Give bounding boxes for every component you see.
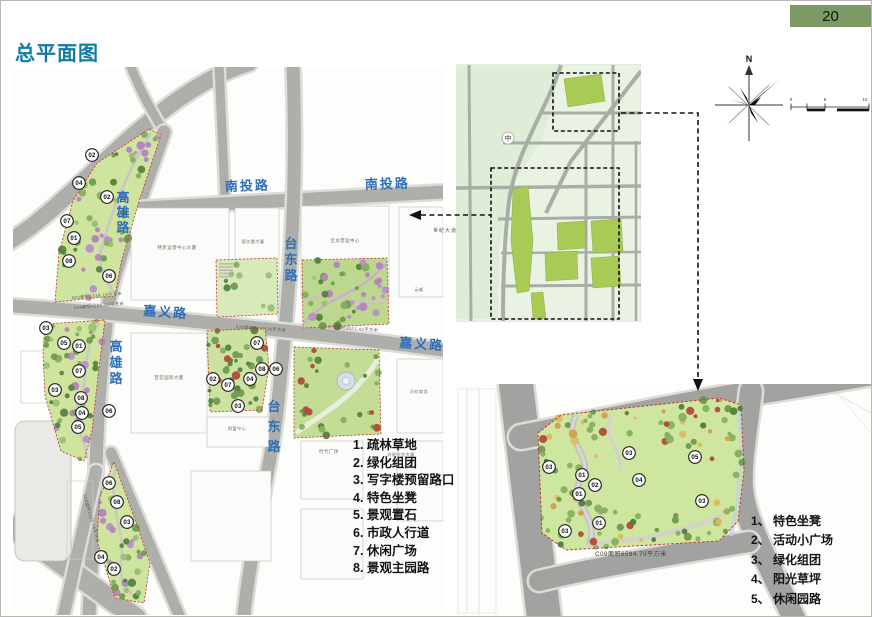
svg-text:08: 08 — [113, 499, 121, 506]
svg-text:南投路: 南投路 — [365, 175, 411, 192]
detail-area-caption: C09面积6594.70平方米 — [595, 550, 667, 558]
svg-text:N: N — [746, 54, 753, 64]
document-page: 20 总平面图 特步运营中心大厦德尔惠大厦宝龙营运中心百宏国际大厦财富中心时代广… — [0, 0, 872, 617]
plan-marker-03: 03 — [696, 495, 709, 508]
plan-marker-06: 06 — [103, 405, 116, 418]
svg-text:03: 03 — [561, 528, 569, 535]
plan-marker-05: 05 — [72, 421, 85, 434]
plan-marker-07: 07 — [73, 365, 86, 378]
svg-text:05: 05 — [691, 454, 699, 461]
svg-text:台东路: 台东路 — [267, 399, 281, 454]
svg-text:08: 08 — [258, 366, 266, 373]
plan-marker-08: 08 — [75, 392, 88, 405]
svg-text:02: 02 — [209, 376, 217, 383]
page-number: 20 — [822, 8, 839, 25]
detail-legend-item: 4、 阳光草坪 — [751, 570, 869, 589]
svg-text:03: 03 — [51, 387, 59, 394]
svg-text:德尔惠大厦: 德尔惠大厦 — [242, 238, 265, 245]
svg-text:高雄路: 高雄路 — [115, 190, 130, 235]
plan-marker-04: 04 — [73, 177, 86, 190]
plan-marker-04: 04 — [633, 474, 646, 487]
main-legend-item: 5. 景观置石 — [353, 507, 463, 525]
plan-marker-03: 03 — [121, 516, 134, 529]
svg-text:02: 02 — [591, 482, 599, 489]
page-number-badge: 20 — [790, 5, 871, 27]
svg-text:03: 03 — [42, 325, 50, 332]
svg-text:02: 02 — [103, 194, 111, 201]
detail-legend-item: 5、 休闲园路 — [751, 590, 869, 609]
svg-text:5: 5 — [824, 97, 827, 102]
plan-marker-07: 07 — [251, 337, 264, 350]
plan-marker-01: 01 — [73, 340, 86, 353]
plan-marker-08: 08 — [256, 363, 269, 376]
svg-text:0: 0 — [790, 97, 793, 102]
plan-marker-01: 01 — [68, 232, 81, 245]
north-compass-icon: N — [715, 54, 783, 141]
svg-text:07: 07 — [224, 382, 232, 389]
svg-text:04: 04 — [75, 180, 83, 187]
plan-marker-07: 07 — [61, 215, 74, 228]
plan-marker-06: 06 — [103, 270, 116, 283]
svg-text:台东路: 台东路 — [284, 236, 298, 283]
svg-text:01: 01 — [595, 520, 603, 527]
svg-text:嘉义路: 嘉义路 — [142, 303, 189, 321]
page-title: 总平面图 — [15, 37, 99, 66]
svg-text:04: 04 — [97, 554, 105, 561]
svg-text:03: 03 — [625, 450, 633, 457]
svg-text:03: 03 — [545, 464, 553, 471]
svg-text:百宏国际大厦: 百宏国际大厦 — [154, 374, 183, 381]
plan-marker-01: 01 — [576, 469, 589, 482]
main-legend-item: 3. 写字楼预留路口 — [353, 472, 463, 490]
svg-text:05: 05 — [60, 340, 68, 347]
svg-text:01: 01 — [70, 235, 78, 242]
plan-marker-02: 02 — [86, 149, 99, 162]
svg-text:03: 03 — [123, 519, 131, 526]
plan-marker-03: 03 — [543, 461, 556, 474]
plan-marker-03: 03 — [49, 384, 62, 397]
plan-marker-07: 07 — [222, 379, 235, 392]
svg-text:07: 07 — [253, 340, 261, 347]
plan-marker-01: 01 — [593, 517, 606, 530]
plan-marker-04: 04 — [95, 551, 108, 564]
plan-marker-03: 03 — [232, 400, 245, 413]
plan-marker-08: 08 — [63, 255, 76, 268]
svg-text:03: 03 — [234, 403, 242, 410]
svg-text:云威: 云威 — [415, 286, 424, 292]
svg-text:07: 07 — [75, 368, 83, 375]
svg-text:04: 04 — [78, 410, 86, 417]
main-legend-item: 2. 绿化组团 — [353, 455, 463, 473]
plan-marker-05: 05 — [58, 337, 71, 350]
main-legend-item: 7. 休闲广场 — [353, 543, 463, 561]
svg-text:南投路: 南投路 — [225, 177, 271, 194]
svg-text:高雄路: 高雄路 — [108, 339, 123, 386]
plan-marker-06: 06 — [103, 477, 116, 490]
svg-text:05: 05 — [74, 424, 82, 431]
svg-text:02: 02 — [88, 152, 96, 159]
svg-text:08: 08 — [77, 395, 85, 402]
svg-text:01: 01 — [578, 472, 586, 479]
svg-text:04: 04 — [246, 376, 254, 383]
svg-text:10: 10 — [862, 97, 868, 102]
detail-legend-item: 1、 特色坐凳 — [751, 512, 869, 531]
plan-marker-06: 06 — [270, 363, 283, 376]
main-legend-item: 1. 疏林草地 — [353, 437, 463, 455]
svg-text:宝龙营运中心: 宝龙营运中心 — [330, 237, 359, 244]
svg-text:特步运营中心大厦: 特步运营中心大厦 — [157, 244, 196, 251]
svg-text:财富中心: 财富中心 — [228, 425, 247, 432]
svg-text:08: 08 — [65, 258, 73, 265]
plan-marker-02: 02 — [101, 191, 114, 204]
detail-legend-item: 3、 绿化组团 — [751, 551, 869, 570]
plan-marker-03: 03 — [40, 322, 53, 335]
overview-center-label: 中 — [505, 134, 512, 143]
detail-plan-legend: 1、 特色坐凳2、 活动小广场3、 绿化组团4、 阳光草坪5、 休闲园路 — [751, 512, 869, 609]
scale-bar: 0510 — [790, 97, 869, 111]
svg-text:06: 06 — [105, 480, 113, 487]
plan-marker-05: 05 — [689, 451, 702, 464]
main-legend-item: 4. 特色坐凳 — [353, 490, 463, 508]
main-legend-item: 6. 市政人行道 — [353, 525, 463, 543]
plan-marker-04: 04 — [76, 407, 89, 420]
svg-text:07: 07 — [63, 218, 71, 225]
plan-marker-01: 01 — [573, 488, 586, 501]
svg-text:时代广场: 时代广场 — [319, 448, 339, 455]
plan-marker-02: 02 — [108, 563, 121, 576]
plan-marker-04: 04 — [244, 373, 257, 386]
svg-text:01: 01 — [75, 343, 83, 350]
svg-text:06: 06 — [105, 408, 113, 415]
detail-legend-item: 2、 活动小广场 — [751, 531, 869, 550]
svg-text:01: 01 — [575, 491, 583, 498]
svg-text:天虹商务: 天虹商务 — [410, 388, 429, 395]
location-overview-map: 中 — [456, 64, 641, 322]
svg-text:06: 06 — [105, 273, 113, 280]
main-plan-legend: 1. 疏林草地2. 绿化组团3. 写字楼预留路口4. 特色坐凳5. 景观置石6.… — [353, 437, 463, 578]
svg-text:04: 04 — [635, 477, 643, 484]
plan-marker-08: 08 — [111, 496, 124, 509]
svg-text:03: 03 — [698, 498, 706, 505]
plan-marker-02: 02 — [589, 479, 602, 492]
svg-text:02: 02 — [110, 566, 118, 573]
svg-text:06: 06 — [272, 366, 280, 373]
plan-marker-03: 03 — [559, 525, 572, 538]
plan-marker-03: 03 — [623, 447, 636, 460]
plan-marker-02: 02 — [207, 373, 220, 386]
main-legend-item: 8. 景观主园路 — [353, 560, 463, 578]
